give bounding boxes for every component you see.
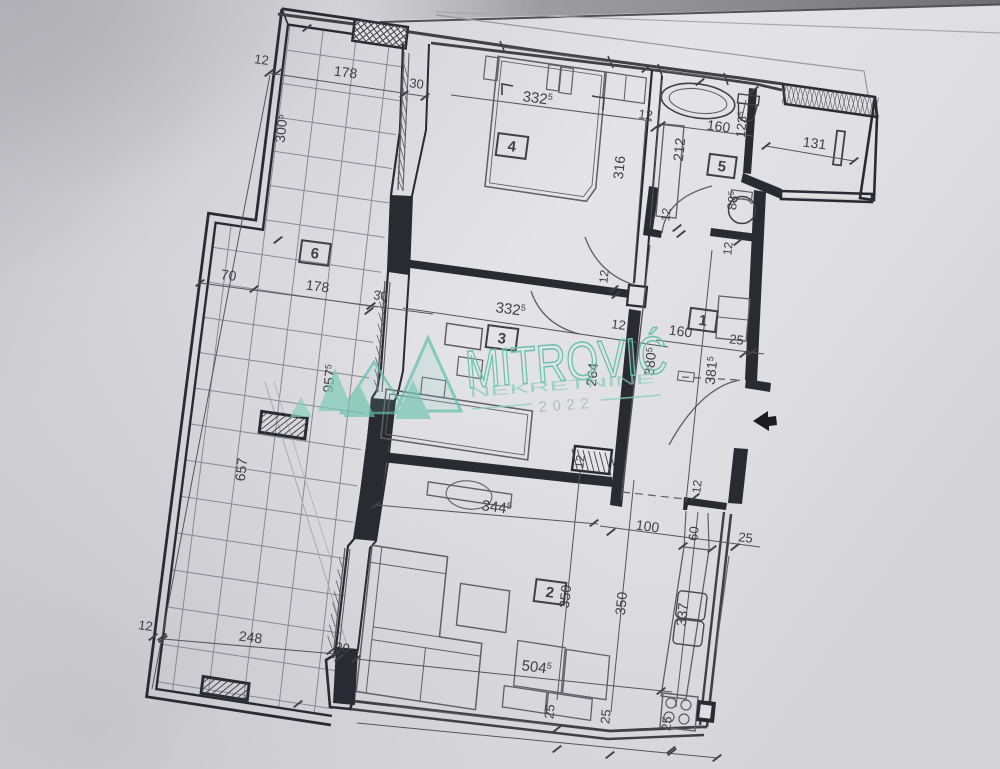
svg-text:12: 12 [596,269,611,284]
svg-text:12: 12 [658,207,673,222]
svg-text:350: 350 [612,591,630,616]
svg-text:12: 12 [253,51,269,68]
svg-text:131: 131 [802,134,827,153]
svg-text:12: 12 [137,617,153,634]
svg-text:25: 25 [541,704,557,720]
svg-text:12: 12 [720,241,735,256]
svg-text:12: 12 [689,479,704,494]
svg-text:25: 25 [658,716,674,732]
svg-text:25: 25 [728,331,744,348]
svg-text:60: 60 [685,526,701,542]
svg-text:248: 248 [238,628,263,647]
svg-text:337: 337 [673,602,691,627]
svg-text:30: 30 [372,287,388,304]
svg-text:12: 12 [572,454,587,469]
svg-text:316: 316 [610,155,628,180]
svg-text:70: 70 [220,266,238,284]
svg-text:25: 25 [737,529,753,546]
svg-text:212: 212 [670,137,688,162]
svg-text:30: 30 [334,639,350,656]
svg-text:100: 100 [635,517,660,536]
svg-text:178: 178 [305,277,330,296]
svg-text:657: 657 [232,457,250,482]
svg-text:25: 25 [597,709,613,725]
svg-text:30: 30 [408,75,424,92]
svg-text:12: 12 [637,106,653,123]
svg-text:178: 178 [333,63,358,82]
svg-text:160: 160 [706,117,731,136]
